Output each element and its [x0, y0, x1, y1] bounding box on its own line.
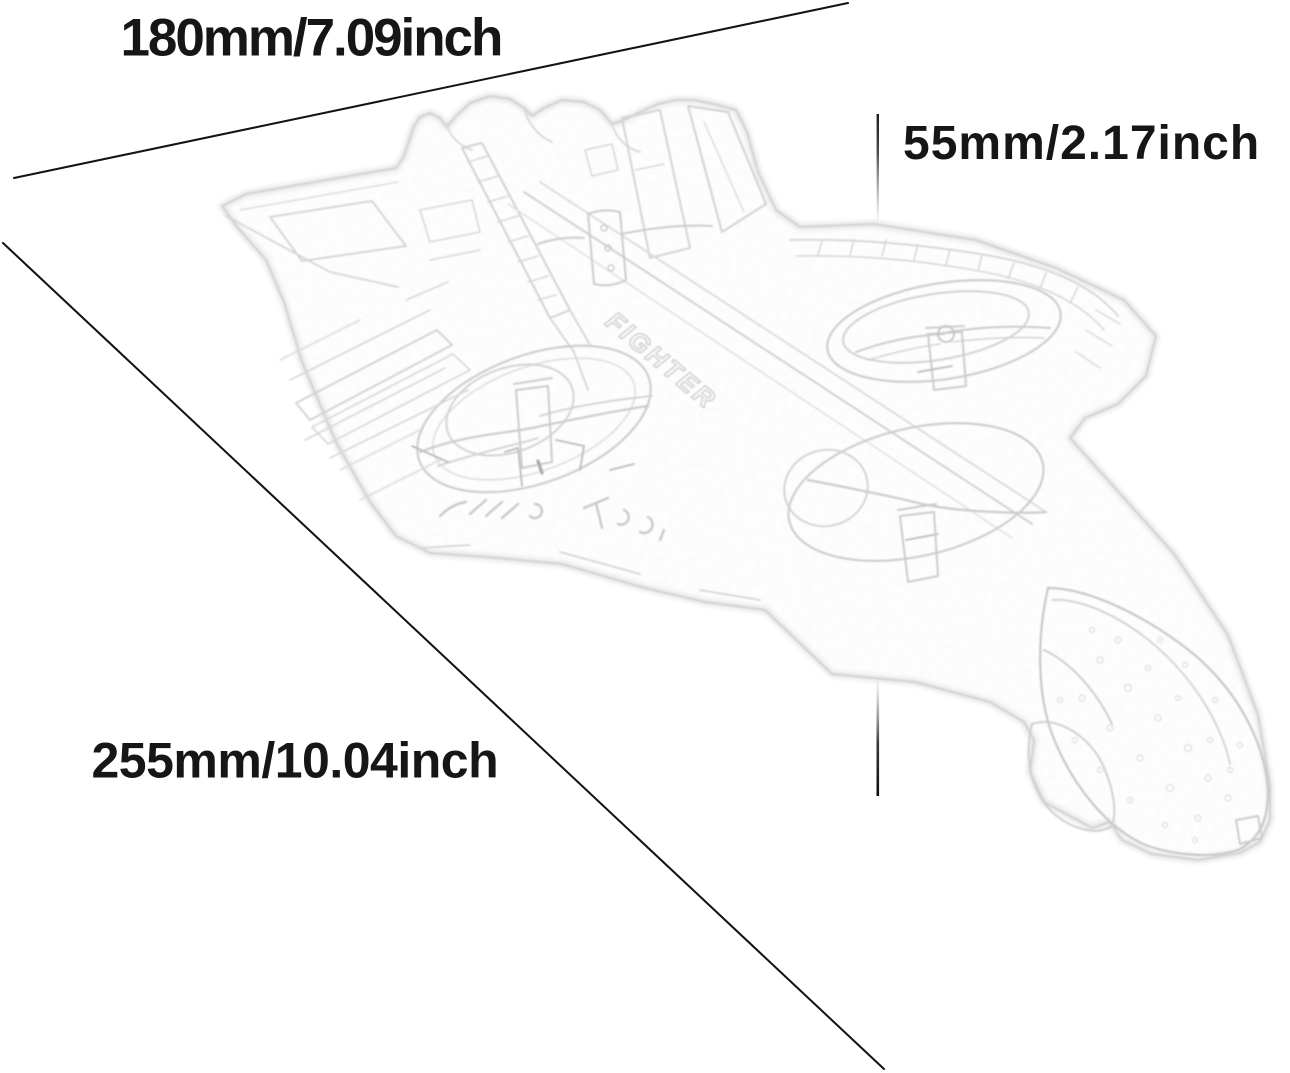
- svg-text:255mm/10.04inch: 255mm/10.04inch: [92, 733, 499, 789]
- svg-text:55mm/2.17inch: 55mm/2.17inch: [903, 117, 1260, 170]
- svg-text:180mm/7.09inch: 180mm/7.09inch: [121, 9, 502, 68]
